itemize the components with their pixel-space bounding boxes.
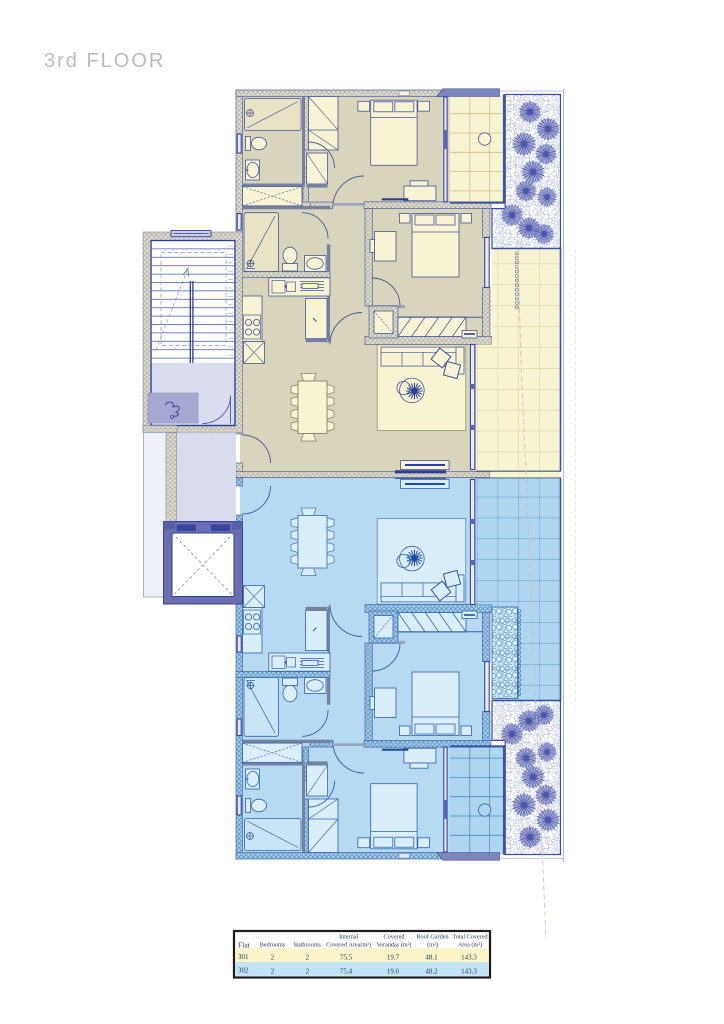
svg-text:19.7: 19.7 [387, 954, 400, 962]
svg-text:302: 302 [238, 967, 249, 975]
svg-text:2: 2 [306, 954, 310, 962]
svg-text:Roof Garden: Roof Garden [416, 934, 448, 941]
svg-text:Internal: Internal [339, 934, 359, 941]
svg-text:48.2: 48.2 [425, 968, 438, 976]
svg-text:3rd FLOOR: 3rd FLOOR [44, 50, 165, 72]
svg-text:Bedrooms: Bedrooms [260, 942, 286, 949]
svg-text:Total Covered: Total Covered [452, 934, 488, 941]
svg-text:2: 2 [271, 968, 275, 976]
svg-text:48.1: 48.1 [425, 954, 438, 962]
svg-text:143.3: 143.3 [461, 968, 477, 976]
svg-text:(m²): (m²) [427, 942, 438, 949]
svg-text:Covered Area(m²): Covered Area(m²) [326, 942, 371, 949]
svg-text:2: 2 [306, 968, 310, 976]
svg-text:301: 301 [238, 953, 249, 961]
svg-text:Verandas (m²): Verandas (m²) [376, 942, 411, 949]
svg-text:75.4: 75.4 [340, 968, 353, 976]
svg-text:Bathrooms: Bathrooms [294, 942, 322, 949]
svg-text:Covered: Covered [384, 934, 406, 941]
svg-text:Flat: Flat [238, 941, 251, 950]
svg-text:Area (m²): Area (m²) [458, 942, 482, 949]
svg-text:2: 2 [271, 954, 275, 962]
svg-text:143.3: 143.3 [461, 954, 477, 962]
svg-text:19.6: 19.6 [387, 968, 400, 976]
svg-text:75.5: 75.5 [340, 954, 353, 962]
